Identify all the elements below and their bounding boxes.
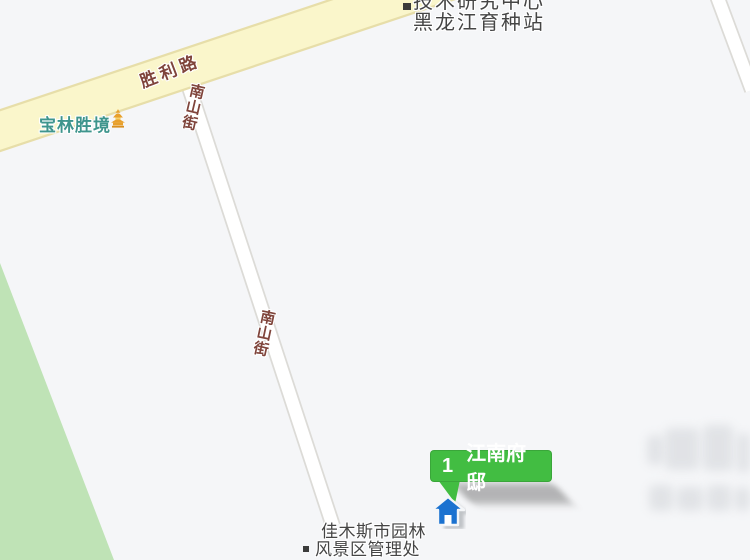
result-marker-bubble[interactable]: 1 江南府邸 — [430, 450, 552, 482]
poi-bullet-icon — [303, 546, 309, 552]
poi-label-research-center-line2: 黑龙江育种站 — [413, 13, 545, 34]
poi-bullet-icon — [403, 3, 411, 10]
poi-label-garden-admin-line2: 风景区管理处 — [315, 541, 420, 559]
poi-label-baolin-scenic: 宝林胜境 — [39, 111, 111, 136]
road-corner-top-right — [714, 0, 750, 90]
marker-title: 江南府邸 — [466, 437, 545, 495]
marker-index: 1 — [442, 455, 453, 478]
map-roads-layer — [0, 0, 750, 560]
map-canvas[interactable]: 胜利路 南山街 南山街 宝林胜境 技术研究中心 黑龙江育种站 佳木斯市园林 风景… — [0, 0, 750, 560]
map-watermark — [645, 413, 750, 518]
temple-attraction-icon — [109, 108, 127, 128]
house-marker-icon[interactable] — [430, 494, 466, 529]
poi-label-garden-admin-line1: 佳木斯市园林 — [321, 523, 426, 541]
road-nanshan-street — [188, 84, 333, 526]
park-area — [0, 263, 114, 560]
